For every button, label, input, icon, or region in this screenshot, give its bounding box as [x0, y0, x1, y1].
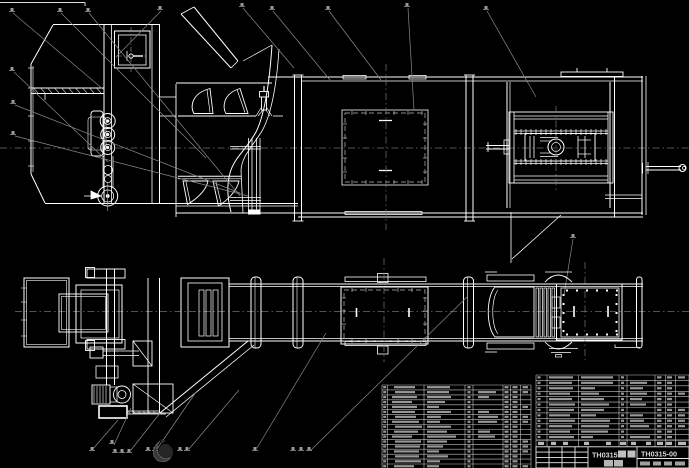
svg-text:TH0315: TH0315: [592, 451, 618, 460]
svg-text:TH0315-00: TH0315-00: [641, 450, 677, 459]
